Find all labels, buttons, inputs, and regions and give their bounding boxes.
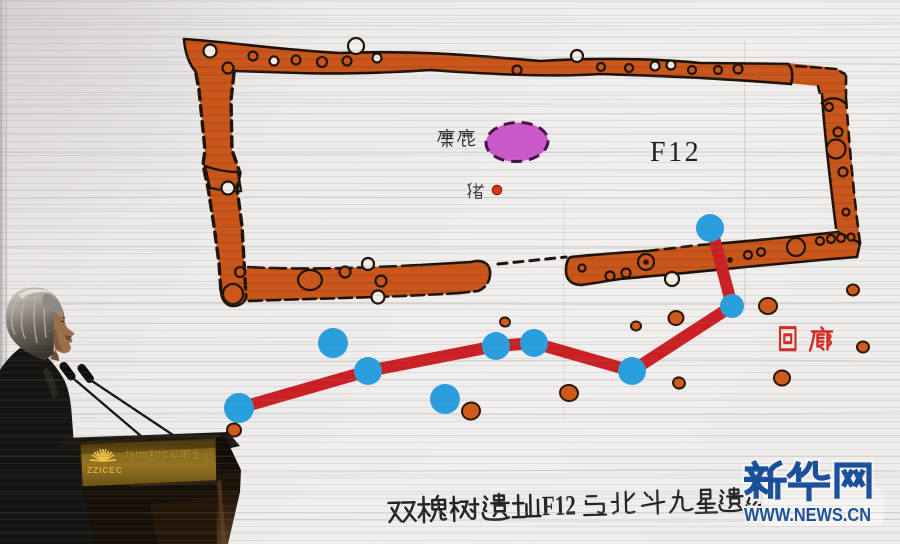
svg-text:ZZICEC: ZZICEC [87, 465, 123, 475]
svg-text:F12: F12 [650, 137, 701, 168]
svg-text:WWW.NEWS.CN: WWW.NEWS.CN [744, 505, 871, 525]
svg-text:F12: F12 [542, 490, 577, 522]
